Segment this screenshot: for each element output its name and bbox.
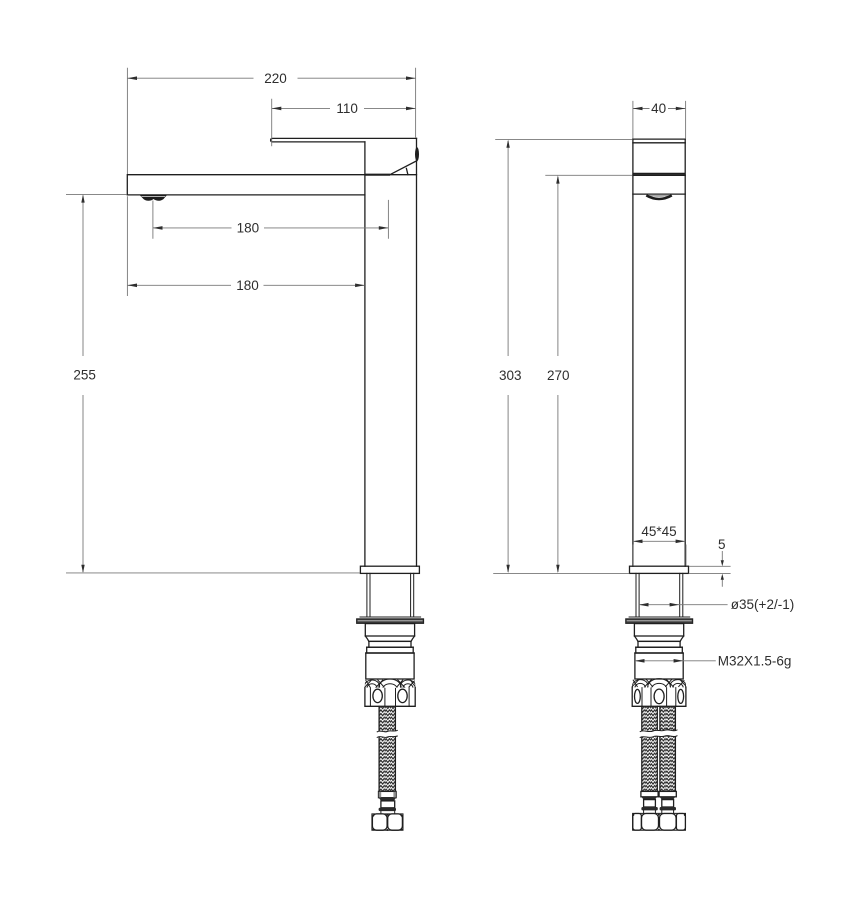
svg-text:45*45: 45*45 <box>641 524 676 539</box>
svg-text:303: 303 <box>499 368 522 383</box>
svg-text:110: 110 <box>336 101 358 116</box>
svg-text:220: 220 <box>264 71 287 86</box>
svg-text:255: 255 <box>73 368 96 383</box>
svg-text:M32X1.5-6g: M32X1.5-6g <box>718 653 792 668</box>
svg-text:180: 180 <box>236 278 259 293</box>
svg-text:ø35(+2/-1): ø35(+2/-1) <box>731 597 794 612</box>
svg-text:40: 40 <box>651 101 666 116</box>
svg-text:270: 270 <box>547 368 570 383</box>
svg-text:5: 5 <box>718 537 726 552</box>
svg-text:180: 180 <box>237 220 260 235</box>
